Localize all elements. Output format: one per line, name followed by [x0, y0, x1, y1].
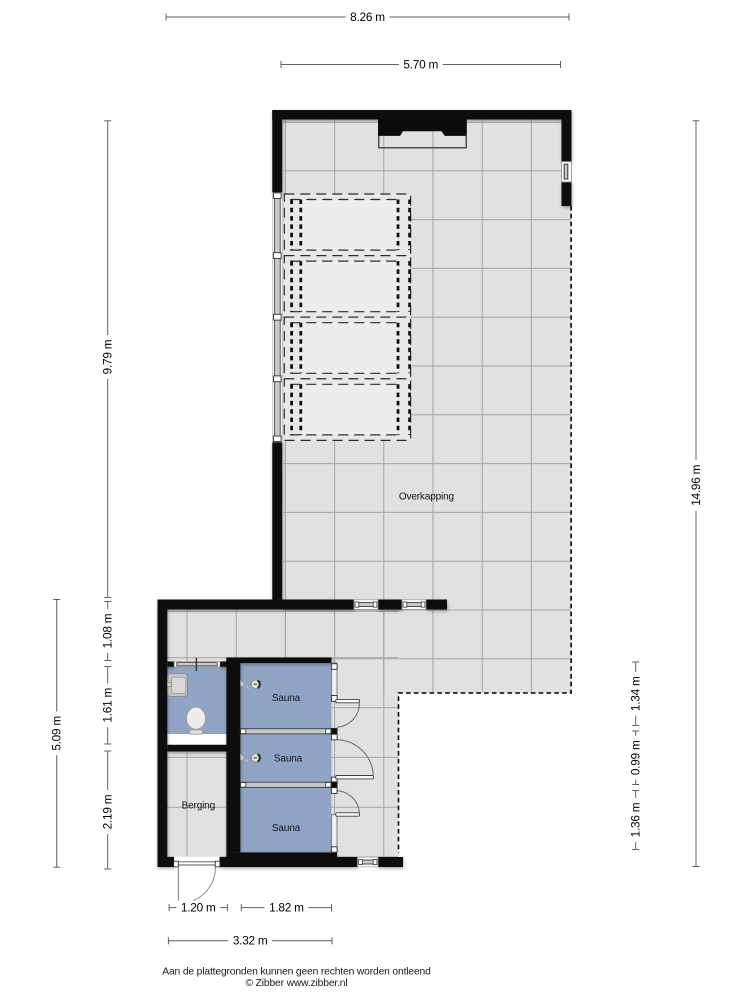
svg-text:Berging: Berging: [182, 800, 215, 811]
svg-text:8.26 m: 8.26 m: [350, 10, 385, 24]
svg-text:9.79 m: 9.79 m: [101, 339, 115, 374]
svg-text:1.36 m: 1.36 m: [629, 802, 643, 837]
svg-text:Sauna: Sauna: [272, 823, 301, 834]
svg-text:1.20 m: 1.20 m: [181, 901, 216, 915]
svg-text:© Zibber www.zibber.nl: © Zibber www.zibber.nl: [245, 978, 347, 989]
svg-text:1.61 m: 1.61 m: [101, 688, 115, 723]
svg-text:Aan de plattegronden kunnen ge: Aan de plattegronden kunnen geen rechten…: [162, 966, 431, 977]
svg-text:3.32 m: 3.32 m: [233, 934, 268, 948]
svg-text:5.09 m: 5.09 m: [50, 716, 64, 751]
svg-text:5.70 m: 5.70 m: [403, 57, 438, 71]
svg-text:1.08 m: 1.08 m: [101, 613, 115, 648]
svg-text:1.82 m: 1.82 m: [269, 901, 304, 915]
svg-text:1.34 m: 1.34 m: [629, 676, 643, 711]
svg-text:Sauna: Sauna: [272, 693, 301, 704]
svg-text:Overkapping: Overkapping: [399, 491, 454, 502]
svg-text:2.19 m: 2.19 m: [101, 794, 115, 829]
svg-text:14.96 m: 14.96 m: [689, 464, 703, 505]
svg-text:Sauna: Sauna: [274, 753, 303, 764]
svg-text:0.99 m: 0.99 m: [629, 740, 643, 775]
